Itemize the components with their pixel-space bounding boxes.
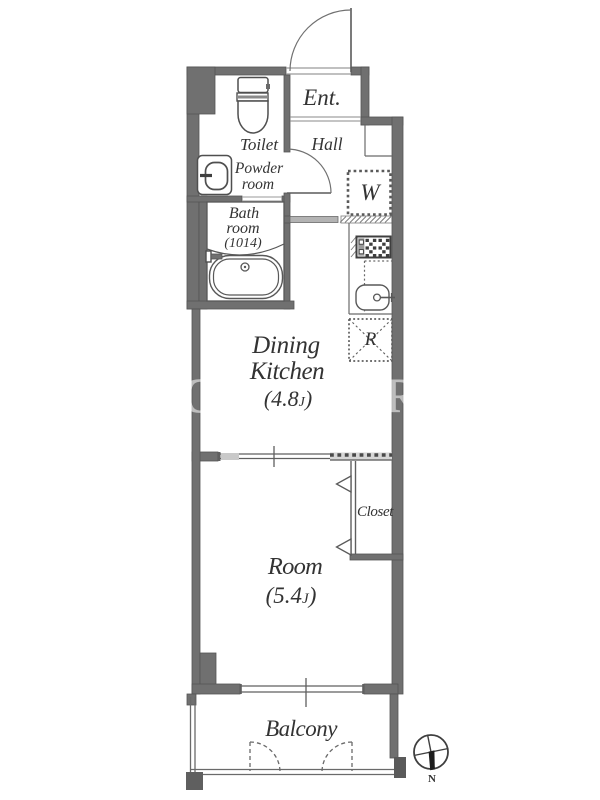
svg-text:(1014): (1014) (224, 236, 262, 251)
svg-text:Balcony: Balcony (265, 716, 338, 741)
svg-text:Kitchen: Kitchen (249, 358, 324, 385)
svg-text:R: R (364, 329, 377, 350)
svg-text:Room: Room (267, 553, 322, 580)
svg-text:N: N (428, 773, 436, 785)
svg-text:Hall: Hall (310, 134, 342, 154)
svg-text:room: room (242, 176, 274, 193)
svg-text:R: R (383, 367, 420, 423)
svg-text:Ent.: Ent. (302, 85, 341, 110)
svg-text:(4.8J): (4.8J) (264, 386, 312, 411)
svg-text:Closet: Closet (357, 504, 394, 520)
svg-text:room: room (226, 220, 259, 237)
svg-text:Dining: Dining (251, 332, 320, 359)
svg-text:W: W (360, 180, 381, 205)
svg-text:O: O (181, 367, 220, 423)
svg-text:Toilet: Toilet (240, 135, 279, 154)
svg-text:Powder: Powder (234, 160, 284, 177)
svg-text:(5.4J): (5.4J) (266, 583, 317, 608)
